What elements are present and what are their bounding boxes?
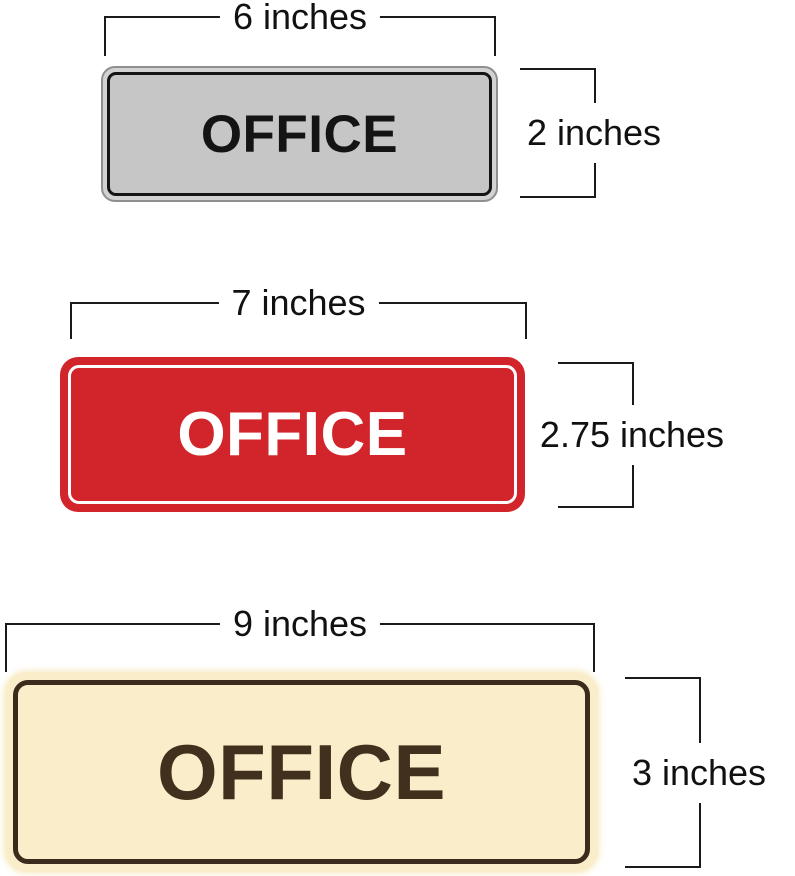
- width-dimension-label: 9 inches: [220, 601, 380, 647]
- width-dimension-bracket: 7 inches: [70, 302, 527, 339]
- height-dimension-bracket: 3 inches: [625, 677, 701, 868]
- sign-text: OFFICE: [157, 733, 446, 811]
- width-dimension-label: 7 inches: [218, 280, 378, 326]
- height-dimension-label: 2.75 inches: [530, 405, 734, 465]
- product-dimension-illustration: 6 inches OFFICE 2 inches 7 inches OFFICE…: [0, 0, 795, 876]
- width-dimension-label: 6 inches: [220, 0, 380, 40]
- cream-office-sign-face: OFFICE: [13, 680, 590, 864]
- height-dimension-bracket: 2 inches: [520, 68, 596, 198]
- width-dimension-bracket: 6 inches: [104, 16, 496, 56]
- height-dimension-label: 3 inches: [622, 743, 776, 803]
- sign-text: OFFICE: [177, 404, 407, 466]
- red-office-sign: OFFICE: [60, 357, 525, 512]
- cream-office-sign: OFFICE: [5, 672, 598, 872]
- red-office-sign-face: OFFICE: [68, 365, 517, 504]
- height-dimension-bracket: 2.75 inches: [558, 362, 634, 508]
- height-dimension-label: 2 inches: [517, 103, 671, 163]
- width-dimension-bracket: 9 inches: [5, 623, 595, 672]
- sign-text: OFFICE: [201, 108, 398, 161]
- gray-office-sign-face: OFFICE: [107, 72, 492, 196]
- gray-office-sign: OFFICE: [101, 66, 498, 202]
